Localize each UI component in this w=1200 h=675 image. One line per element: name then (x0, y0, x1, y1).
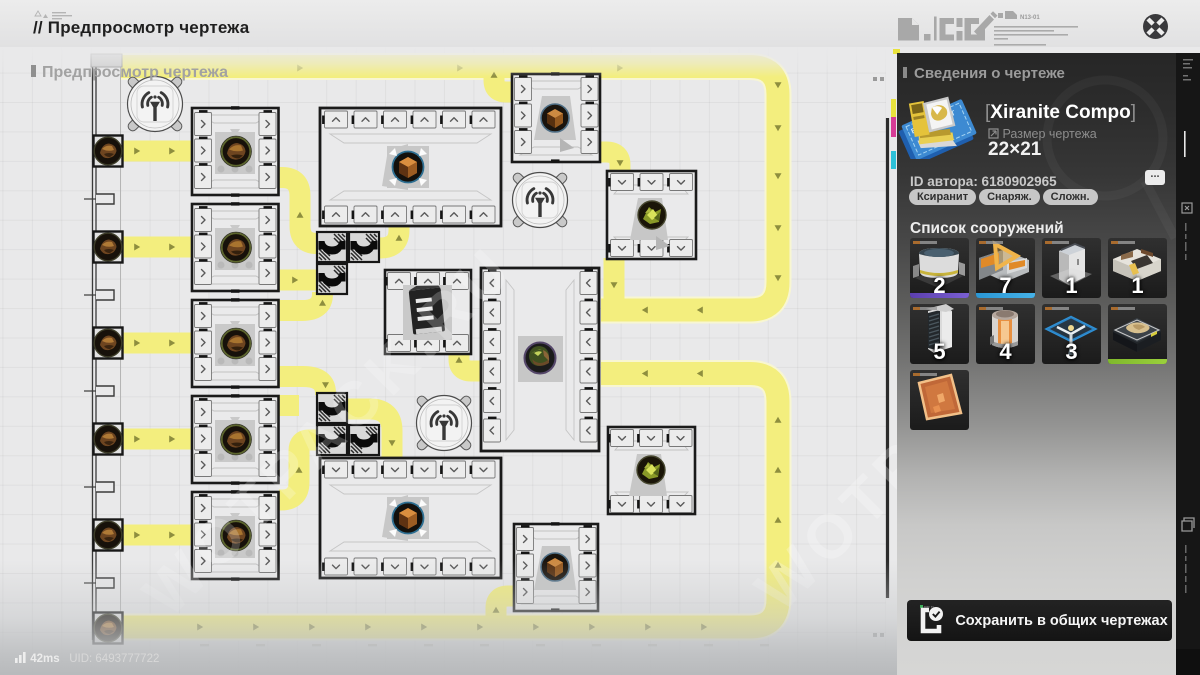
svg-text:N13-01: N13-01 (1020, 15, 1040, 21)
